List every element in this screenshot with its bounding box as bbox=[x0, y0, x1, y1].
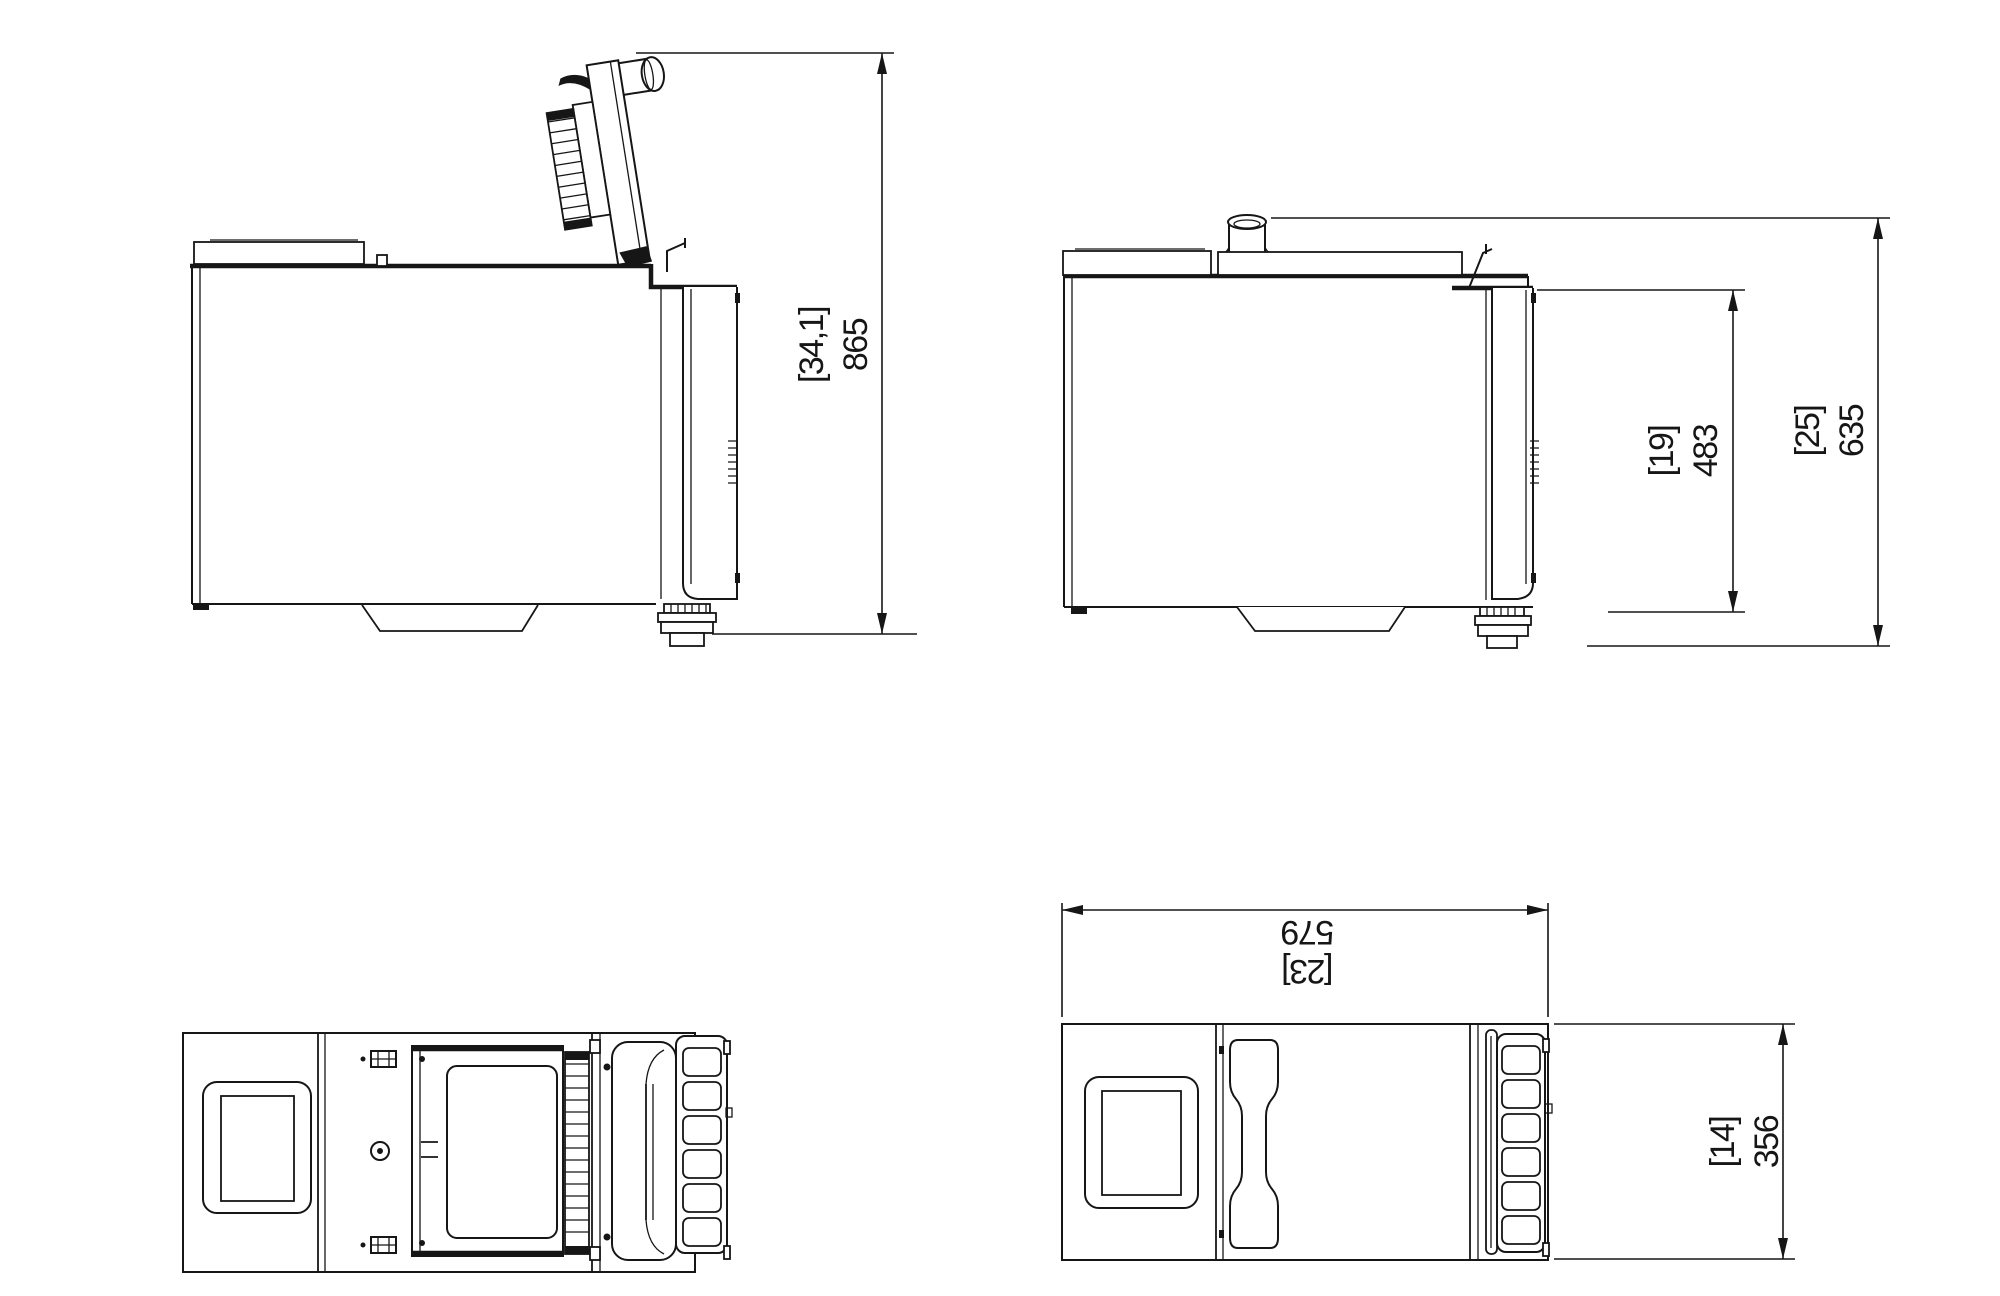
dim-579-inch-label: [23] bbox=[1283, 952, 1334, 990]
dimension-depth-579: 579 [23] bbox=[1062, 903, 1548, 1017]
front-panel-right bbox=[1492, 288, 1533, 599]
dim-483-mm-label: 483 bbox=[1687, 424, 1725, 477]
technical-drawing: [34,1] 865 bbox=[0, 0, 2000, 1296]
view-top-left bbox=[183, 1033, 732, 1272]
hinge-bar bbox=[1486, 1030, 1497, 1254]
dim-356-inch-label: [14] bbox=[1704, 1117, 1742, 1168]
open-door-plan bbox=[612, 1042, 676, 1260]
foot-right-view bbox=[1071, 607, 1087, 614]
bottom-connector-right bbox=[1475, 607, 1531, 648]
latch-hook-right bbox=[1469, 249, 1492, 288]
base-tray-right bbox=[1237, 607, 1405, 631]
chimney-vent bbox=[1222, 215, 1272, 253]
dim-635-mm-label: 635 bbox=[1833, 404, 1871, 457]
dim-579-mm-label: 579 bbox=[1281, 913, 1334, 951]
view-side-left: [34,1] 865 bbox=[190, 53, 917, 646]
dimension-body-635: [25] 635 bbox=[1271, 218, 1890, 646]
view-side-right: [19] 483 [25] 635 bbox=[1063, 215, 1890, 648]
dimension-door-483: [19] 483 bbox=[1537, 290, 1745, 612]
dim-865-mm-label: 865 bbox=[837, 318, 875, 371]
top-rear-cover bbox=[194, 242, 364, 264]
base-tray bbox=[362, 605, 538, 631]
top-nub bbox=[377, 255, 387, 266]
latch-hook bbox=[667, 243, 685, 272]
top-cover-left bbox=[1063, 251, 1211, 275]
dim-635-inch-label: [25] bbox=[1789, 406, 1827, 457]
dim-483-inch-label: [19] bbox=[1643, 426, 1681, 477]
drawing-canvas: [34,1] 865 bbox=[0, 0, 2000, 1296]
dimension-width-356: [14] 356 bbox=[1554, 1024, 1795, 1259]
door-slat-grille bbox=[676, 1036, 732, 1259]
hinge-rail bbox=[565, 1052, 589, 1254]
door-slat-grille-right bbox=[1497, 1034, 1552, 1256]
top-cover-right bbox=[1218, 252, 1462, 275]
bottom-connector bbox=[658, 604, 716, 646]
door-hook bbox=[557, 72, 590, 94]
dim-865-inch-label: [34,1] bbox=[793, 307, 831, 383]
open-door-assembly bbox=[540, 54, 693, 277]
dimension-height-865: [34,1] 865 bbox=[636, 53, 917, 634]
view-top-right: 579 [23] [14] 356 bbox=[1062, 903, 1795, 1260]
dim-356-mm-label: 356 bbox=[1748, 1115, 1786, 1168]
foot-left bbox=[193, 604, 209, 610]
glass-lid bbox=[412, 1046, 563, 1256]
